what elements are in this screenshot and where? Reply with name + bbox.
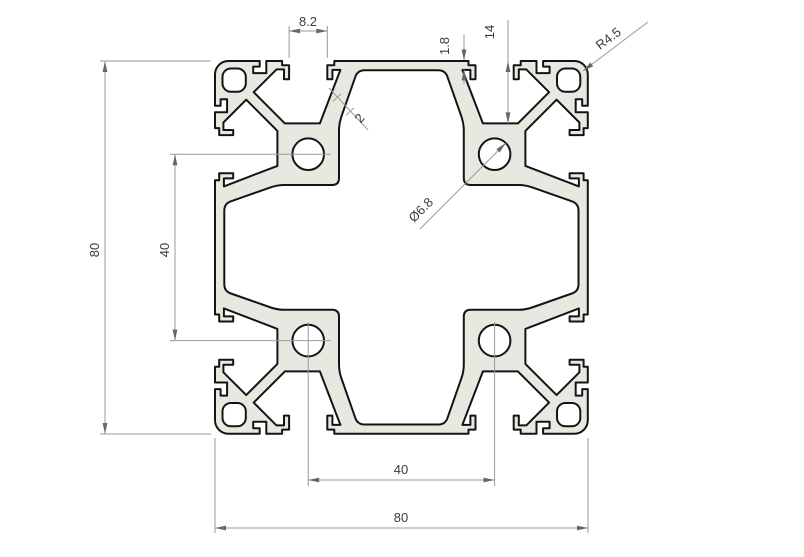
dim-lip-thickness: 1.8 — [437, 37, 452, 55]
dim-overall-width: 80 — [394, 510, 408, 525]
corner-hole — [557, 403, 580, 426]
dim-slot-depth: 14 — [482, 25, 497, 39]
dim-hole-pitch-horizontal: 40 — [394, 462, 408, 477]
corner-hole — [223, 69, 246, 92]
dim-hole-pitch-vertical: 40 — [157, 243, 172, 257]
dim-overall-height: 80 — [87, 243, 102, 257]
extrusion-profile — [215, 61, 588, 434]
technical-drawing-canvas: 8.2 1.8 14 R4.5 80 40 40 80 Ø6.8 2 — [0, 0, 804, 557]
corner-hole — [223, 403, 246, 426]
dim-slot-opening: 8.2 — [299, 14, 317, 29]
dim-corner-radius: R4.5 — [593, 24, 624, 53]
corner-hole — [557, 69, 580, 92]
technical-drawing-page: 8.2 1.8 14 R4.5 80 40 40 80 Ø6.8 2 — [0, 0, 804, 557]
